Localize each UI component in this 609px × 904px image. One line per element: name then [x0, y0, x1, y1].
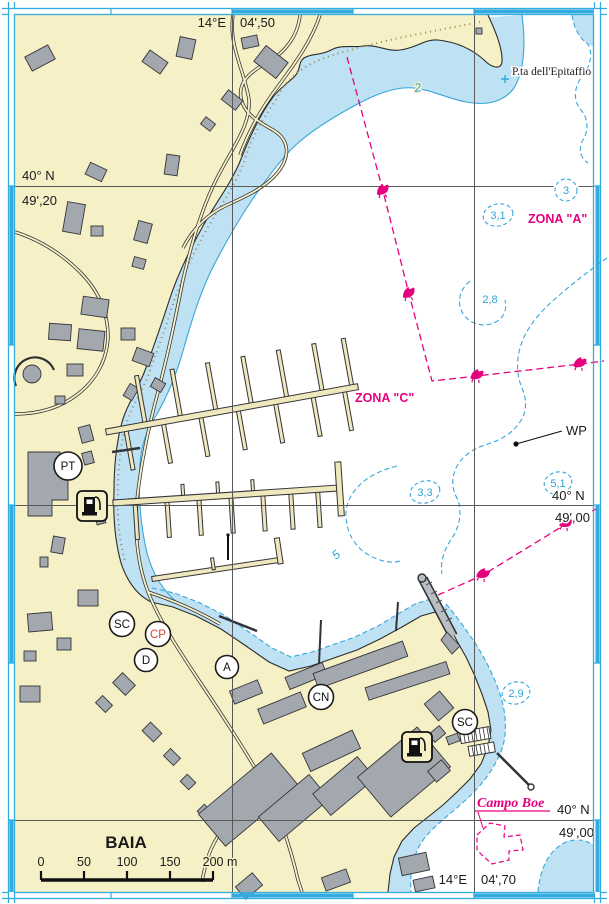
station-sc-west-label: SC [114, 619, 130, 631]
zone-c-label: ZONA "C" [355, 391, 414, 405]
sounding-2-9: 2,9 [508, 688, 523, 700]
station-pt-label: PT [61, 461, 76, 473]
sounding-3-1: 3,1 [490, 210, 505, 222]
lon-top-deg: 14°E [198, 15, 227, 30]
scale-tick-50: 50 [77, 855, 91, 869]
zone-a-label: ZONA "A" [528, 212, 587, 226]
station-sc-east-label: SC [457, 717, 473, 729]
station-d-label: D [142, 655, 150, 667]
station-a: A [216, 656, 239, 679]
station-a-label: A [223, 662, 231, 674]
station-cn: CN [309, 685, 334, 710]
waypoint-label: WP [566, 423, 587, 438]
fuel-station-icon [77, 491, 107, 521]
sounding-2-8: 2,8 [482, 294, 497, 306]
lon-bottom-min: 04',70 [481, 872, 516, 887]
scale-tick-150: 150 [160, 855, 181, 869]
station-cp-label: CP [150, 629, 166, 641]
lat-right-bottom-min: 49',00 [559, 825, 594, 840]
chart-canvas: 3 3,1 2,8 3,3 5,1 2,9 2 5 WP PT SC CP [0, 0, 609, 904]
lon-bottom-deg: 14°E [439, 872, 468, 887]
scale-tick-100: 100 [117, 855, 138, 869]
town-label: BAIA [105, 833, 147, 852]
station-sc-west: SC [110, 612, 135, 637]
lat-right-mid-deg: 40° N [552, 488, 585, 503]
station-cp: CP [146, 622, 171, 647]
headland-label: P.ta dell'Epitaffio [512, 66, 591, 78]
campo-boe-label: Campo Boe [477, 796, 544, 811]
lat-right-mid-min: 49',00 [555, 510, 590, 525]
lat-left-deg: 40° N [22, 168, 55, 183]
sounding-3: 3 [563, 185, 569, 197]
station-pt: PT [54, 452, 82, 480]
lat-left-min: 49',20 [22, 193, 57, 208]
scale-tick-200: 200 m [203, 855, 238, 869]
fuel-station-icon [402, 732, 432, 762]
lat-right-bottom-deg: 40° N [557, 802, 590, 817]
station-cn-label: CN [313, 692, 330, 704]
station-d: D [135, 649, 158, 672]
sounding-3-3: 3,3 [417, 487, 432, 499]
station-sc-east: SC [453, 710, 478, 735]
nautical-chart-baia: 3 3,1 2,8 3,3 5,1 2,9 2 5 WP PT SC CP [0, 0, 609, 904]
scale-tick-0: 0 [38, 855, 45, 869]
lon-top-min: 04',50 [240, 15, 275, 30]
